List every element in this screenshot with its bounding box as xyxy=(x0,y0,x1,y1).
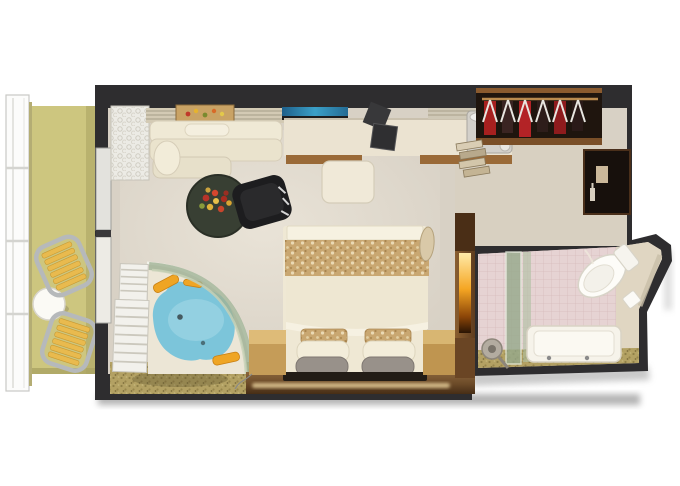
bolster-pillow xyxy=(185,124,229,136)
balcony-door xyxy=(96,148,111,323)
chaise-armrest xyxy=(154,141,180,175)
stool xyxy=(322,161,374,203)
railing-shadow xyxy=(29,102,32,386)
wardrobe xyxy=(476,88,602,145)
divider-wall xyxy=(455,213,475,378)
tub-jet xyxy=(201,341,205,345)
floor-light xyxy=(252,383,450,388)
tub-faucet xyxy=(585,356,589,360)
balcony-railing xyxy=(6,95,32,391)
window-curtain xyxy=(111,106,149,180)
light-niche xyxy=(459,253,471,333)
tub-jet xyxy=(177,314,183,320)
folded-sheet xyxy=(287,226,423,240)
water-highlight xyxy=(168,299,224,341)
headboard xyxy=(283,372,427,381)
bed xyxy=(283,226,429,381)
bathtub xyxy=(527,326,621,362)
card xyxy=(596,166,608,183)
nightstand-right xyxy=(423,330,456,375)
bottle xyxy=(590,188,595,201)
tub-faucet xyxy=(547,356,551,360)
bathroom xyxy=(478,239,662,368)
balcony xyxy=(6,95,99,391)
food-tray xyxy=(176,105,234,123)
stateroom-floorplan xyxy=(0,0,680,486)
bed-throw xyxy=(285,240,429,276)
duvet xyxy=(286,276,428,328)
minibar-cabinet xyxy=(584,150,630,214)
